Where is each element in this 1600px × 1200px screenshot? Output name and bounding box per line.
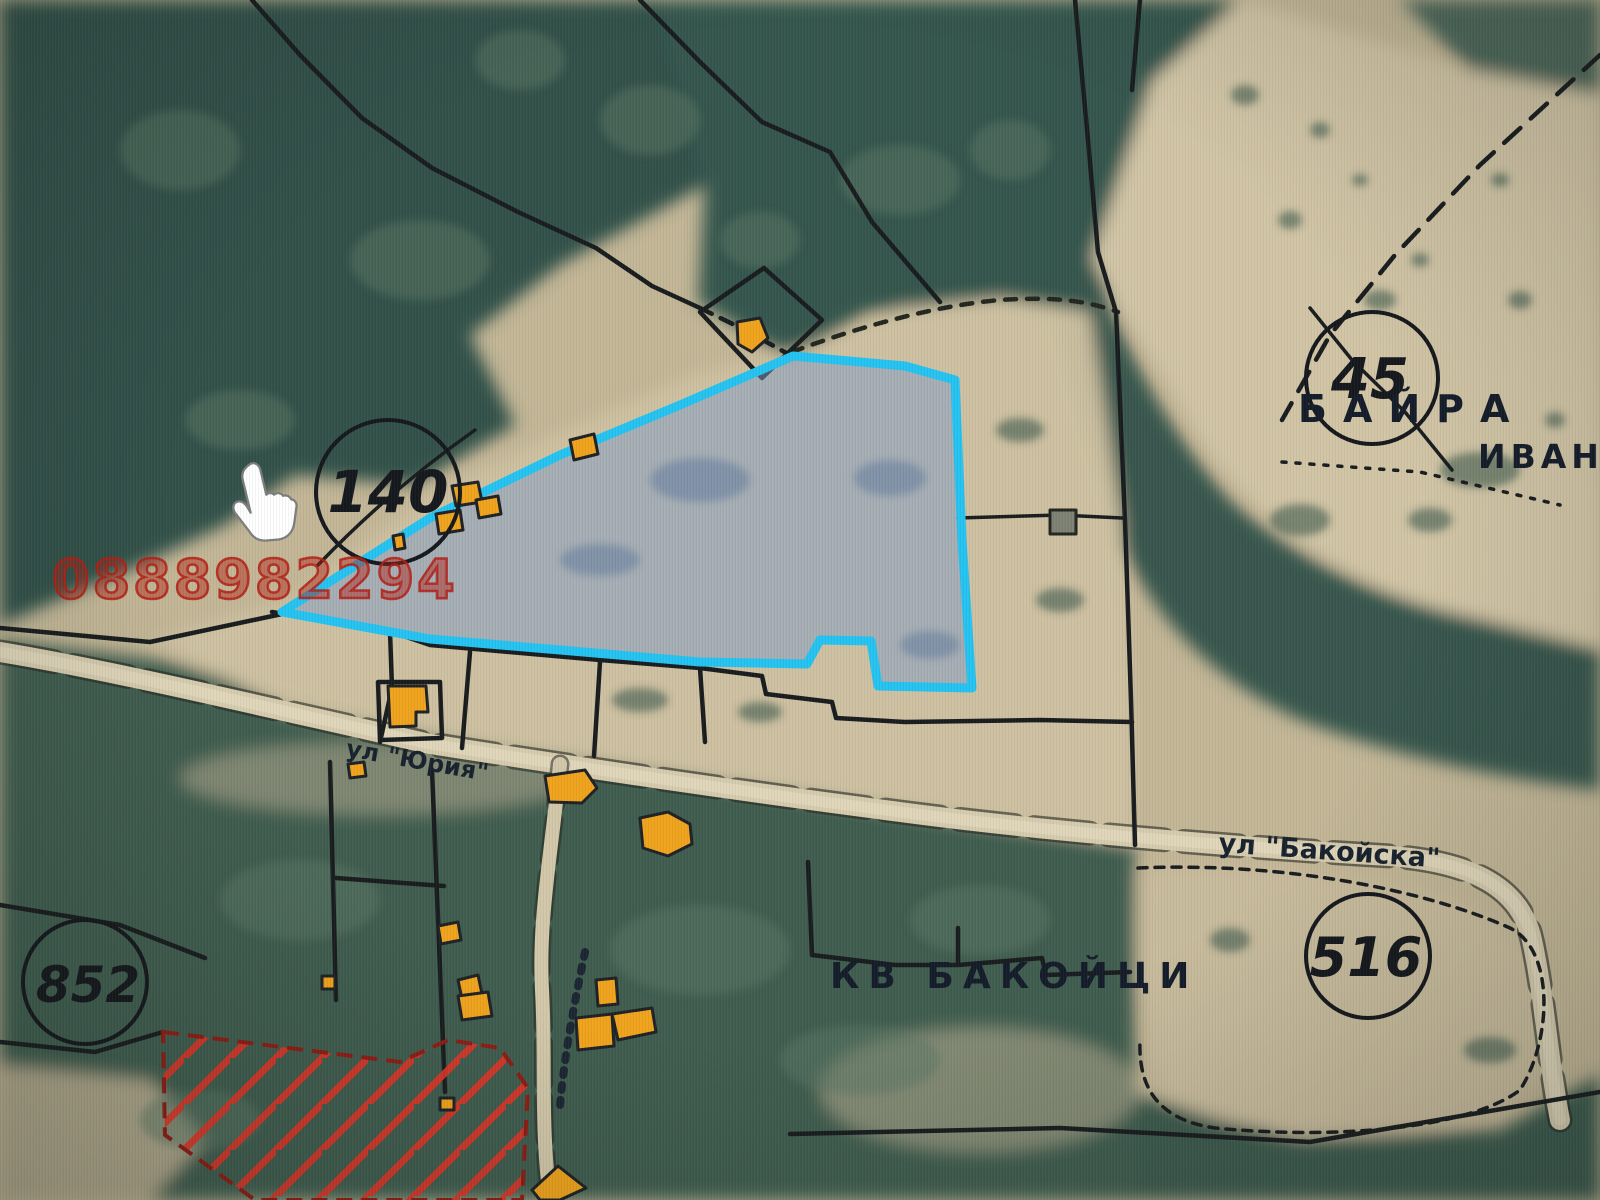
map-viewport[interactable]: 45 140 516 852 БАЙРА ИВАН КВ БАКОЙЦИ ул … — [0, 0, 1600, 1200]
area-label-baira: БАЙРА — [1298, 387, 1525, 431]
parcel-number-140: 140 — [327, 458, 448, 526]
parcel-number-852: 852 — [36, 956, 140, 1014]
area-label-ivan: ИВАН — [1478, 437, 1600, 476]
watermark-phone-number: 0888982294 — [52, 548, 458, 611]
parcel-number-516: 516 — [1310, 926, 1423, 989]
quarter-label: КВ БАКОЙЦИ — [830, 955, 1198, 997]
